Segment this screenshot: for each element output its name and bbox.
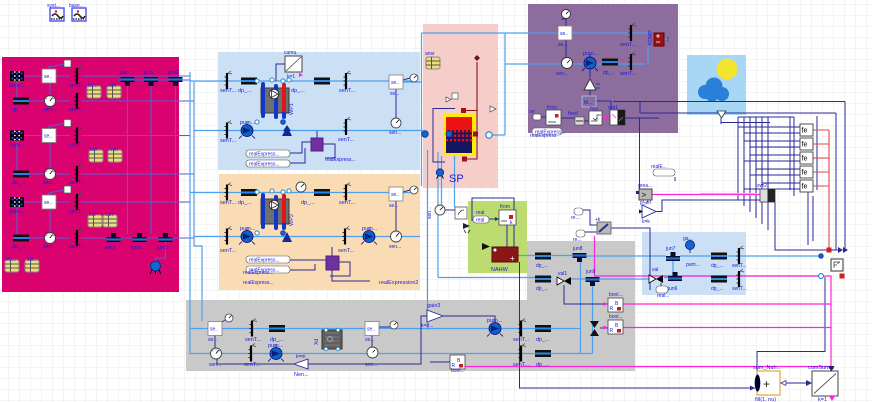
- svg-text:R: R: [610, 328, 614, 334]
- svg-text:real...: real...: [657, 293, 670, 299]
- svg-text:+k: +k: [595, 217, 601, 223]
- svg-text:from: from: [547, 105, 557, 111]
- svg-text:>: >: [642, 191, 647, 200]
- svg-text:WP2: WP2: [289, 214, 295, 226]
- svg-text:senT...: senT...: [339, 88, 356, 94]
- svg-text:sen...: sen...: [365, 362, 377, 368]
- svg-text:pum...: pum...: [487, 318, 503, 324]
- svg-text:sen...: sen...: [43, 180, 57, 186]
- svg-text:senT...: senT...: [69, 244, 86, 250]
- svg-text:NAHW: NAHW: [491, 267, 509, 273]
- svg-text:se...: se...: [558, 42, 567, 48]
- svg-text:fill(1, nu): fill(1, nu): [755, 397, 776, 402]
- svg-text:+: +: [510, 254, 515, 263]
- svg-text:se...: se...: [365, 337, 374, 343]
- svg-text:jun9: jun9: [585, 269, 596, 275]
- svg-text:jun6: jun6: [667, 286, 678, 292]
- svg-text:realE...: realE...: [651, 164, 667, 170]
- svg-text:jun2: jun2: [104, 245, 115, 251]
- svg-text:Xd: Xd: [314, 339, 320, 345]
- svg-text:se...: se...: [390, 91, 399, 97]
- svg-text:re...: re...: [573, 237, 582, 243]
- svg-text:senT...: senT...: [69, 143, 86, 149]
- svg-text:dp_...: dp_...: [238, 200, 252, 206]
- svg-text:con: con: [108, 83, 116, 89]
- svg-text:k=d...: k=d...: [421, 323, 433, 329]
- svg-text:con: con: [110, 147, 118, 153]
- svg-text:swi1: swi1: [608, 105, 618, 111]
- svg-text:bore...: bore...: [9, 143, 25, 149]
- svg-text:sen...: sen...: [389, 130, 401, 136]
- svg-text:KOMP: KOMP: [648, 30, 654, 45]
- svg-text:pum...: pum...: [240, 120, 256, 126]
- svg-text:pum...: pum...: [686, 262, 700, 268]
- svg-text:feed: feed: [568, 111, 578, 117]
- svg-text:bool...: bool...: [451, 368, 465, 374]
- svg-text:realExpress...: realExpress...: [243, 280, 274, 286]
- svg-text:R: R: [610, 306, 614, 312]
- svg-text:senT...: senT...: [220, 200, 237, 206]
- svg-text:real: real: [476, 210, 484, 216]
- svg-text:bo...: bo...: [88, 83, 98, 89]
- svg-text:p_inf: p_inf: [640, 200, 651, 206]
- svg-text:sum_Nah...: sum_Nah...: [753, 365, 782, 371]
- svg-text:senT...: senT...: [732, 263, 747, 269]
- svg-text:re...: re...: [571, 215, 580, 221]
- svg-text:hys: hys: [590, 106, 598, 112]
- svg-text:real: real: [476, 218, 484, 224]
- svg-text:SP: SP: [449, 173, 464, 185]
- svg-text:senT...: senT...: [620, 42, 637, 48]
- svg-text:sen...: sen...: [209, 362, 221, 368]
- svg-text:cumu.: cumu.: [284, 50, 298, 56]
- svg-text:fro...: fro...: [6, 257, 16, 263]
- svg-text:se...: se...: [208, 337, 217, 343]
- svg-text:WP1: WP1: [289, 103, 295, 115]
- svg-text:senT...: senT...: [338, 137, 355, 143]
- svg-text:val1: val1: [558, 271, 567, 277]
- svg-text:dp_...: dp_...: [12, 244, 26, 250]
- svg-text:senT...: senT...: [69, 107, 86, 113]
- svg-text:base...: base...: [69, 3, 84, 9]
- svg-text:dp_...: dp_...: [711, 286, 724, 292]
- svg-text:sen...: sen...: [43, 107, 57, 113]
- svg-text:dp_...: dp_...: [12, 180, 26, 186]
- svg-text:se...: se...: [389, 203, 398, 209]
- svg-text:bool...: bool...: [609, 292, 623, 298]
- svg-text:senT...: senT...: [339, 200, 356, 206]
- svg-text:con: con: [105, 212, 113, 218]
- svg-text:pum...: pum...: [362, 226, 378, 232]
- svg-text:syst...: syst...: [47, 3, 60, 9]
- svg-text:sol..: sol..: [27, 257, 36, 263]
- svg-text:realExpress...: realExpress...: [249, 162, 280, 168]
- svg-text:senT...: senT...: [220, 88, 237, 94]
- svg-text:senT...: senT...: [620, 71, 637, 77]
- svg-text:realExpress...: realExpress...: [243, 270, 274, 276]
- svg-text:bor: bor: [89, 212, 97, 218]
- svg-text:dp_...: dp_...: [536, 362, 550, 368]
- svg-text:k=m: k=m: [296, 354, 306, 360]
- svg-text:realExpress...: realExpress...: [249, 152, 280, 158]
- svg-text:jun3: jun3: [130, 245, 141, 251]
- svg-text:swi2: swi2: [757, 183, 767, 189]
- svg-text:sen...: sen...: [427, 207, 433, 219]
- svg-text:cumSum...: cumSum...: [808, 365, 835, 371]
- svg-text:senT...: senT...: [732, 286, 747, 292]
- svg-text:senT...: senT...: [513, 362, 530, 368]
- svg-text:ga...: ga...: [683, 236, 693, 242]
- svg-text:dp_...: dp_...: [291, 88, 305, 94]
- svg-text:realExpress: realExpress: [530, 133, 557, 139]
- svg-text:senT...: senT...: [69, 83, 86, 89]
- svg-text:pum...: pum...: [240, 226, 256, 232]
- svg-text:k=1: k=1: [818, 397, 827, 402]
- svg-text:+: +: [763, 377, 770, 391]
- svg-text:realExpress...: realExpress...: [249, 258, 280, 264]
- svg-text:sen...: sen...: [43, 244, 57, 250]
- svg-text:sen...: sen...: [556, 71, 568, 77]
- svg-text:bor: bor: [90, 147, 98, 153]
- svg-text:pum...: pum...: [583, 51, 599, 57]
- svg-text:jun1: jun1: [143, 70, 154, 76]
- svg-text:ansr: ansr: [425, 51, 435, 57]
- svg-text:sen...: sen...: [389, 244, 401, 250]
- svg-text:dp_...: dp_...: [238, 88, 252, 94]
- svg-text:senT...: senT...: [513, 337, 530, 343]
- svg-text:senT...: senT...: [245, 337, 262, 343]
- svg-text:realExpress...: realExpress...: [325, 157, 356, 163]
- svg-text:from: from: [500, 204, 510, 210]
- svg-text:senT...: senT...: [69, 180, 86, 186]
- svg-text:bore...: bore...: [9, 209, 25, 215]
- svg-text:senT...: senT...: [69, 209, 86, 215]
- svg-text:k=k: k=k: [642, 219, 650, 225]
- svg-text:senT...: senT...: [220, 138, 237, 144]
- svg-text:dp_...: dp_...: [536, 286, 549, 292]
- svg-text:dp_...: dp_...: [536, 263, 549, 269]
- svg-text:jun: jun: [119, 70, 127, 76]
- svg-text:grea...: grea...: [638, 183, 652, 189]
- svg-text:dp_...: dp_...: [603, 70, 616, 76]
- svg-text:pum...: pum...: [268, 343, 284, 349]
- svg-text:senT...: senT...: [338, 248, 355, 254]
- svg-text:k=1: k=1: [287, 74, 295, 80]
- svg-text:jun5: jun5: [156, 245, 167, 251]
- svg-text:ne: ne: [529, 109, 535, 115]
- svg-text:senT...: senT...: [220, 248, 237, 254]
- svg-text:gain3: gain3: [427, 303, 440, 309]
- svg-text:bool...: bool...: [609, 314, 623, 320]
- svg-text:dp_...: dp_...: [536, 337, 550, 343]
- svg-text:realExpression2: realExpression2: [379, 280, 418, 286]
- svg-text:dp_...: dp_...: [12, 107, 26, 113]
- svg-text:dp_...: dp_...: [301, 200, 315, 206]
- svg-text:dp_...: dp_...: [711, 263, 724, 269]
- svg-text:bore...: bore...: [9, 83, 25, 89]
- svg-text:senT...: senT...: [244, 362, 261, 368]
- svg-text:jun8: jun8: [572, 246, 583, 252]
- svg-text:val: val: [652, 267, 658, 273]
- svg-text:jun7: jun7: [665, 246, 676, 252]
- svg-text:Nen...: Nen...: [294, 372, 309, 378]
- svg-text:jun4: jun4: [167, 70, 178, 76]
